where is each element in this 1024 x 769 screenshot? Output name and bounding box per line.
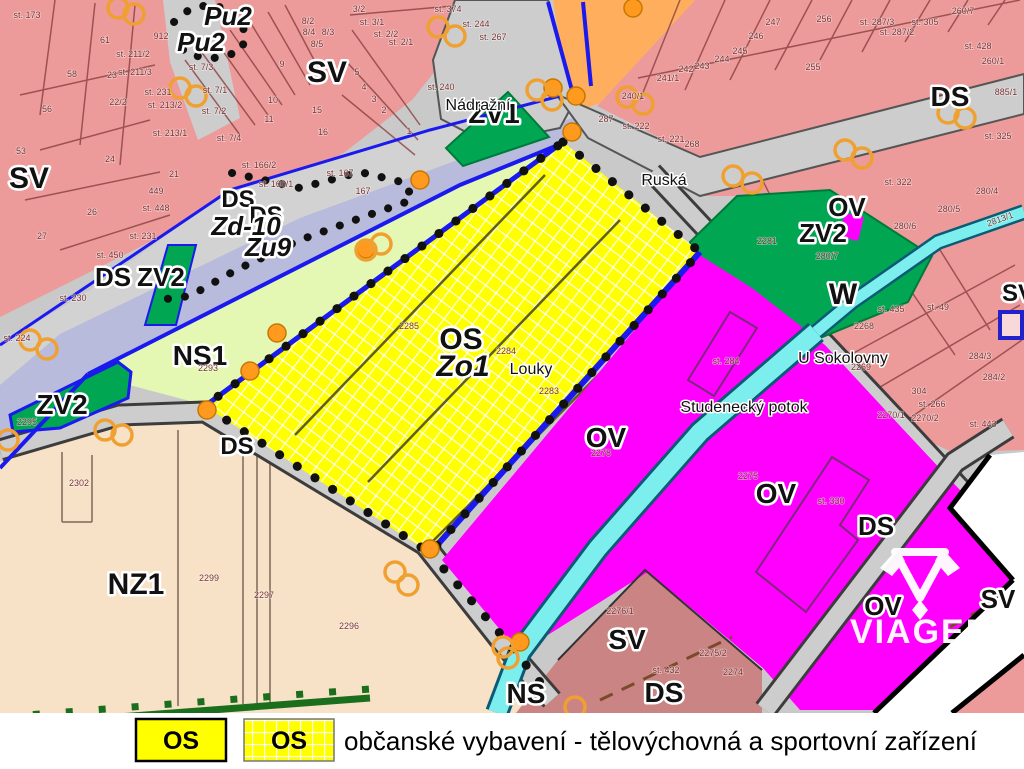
parcel-number: 56: [42, 104, 52, 114]
parcel-number: 23: [107, 70, 117, 80]
legend-swatch-hatched-label: OS: [271, 727, 307, 755]
parcel-number: st. 166/2: [242, 160, 277, 170]
zone-label: DS: [95, 262, 131, 292]
parcel-number: st. 173: [13, 10, 40, 20]
parcel-number: 15: [312, 105, 322, 115]
parcel-number: 3/2: [353, 4, 366, 14]
parcel-number: st. 267: [479, 32, 506, 42]
zoning-map[interactable]: SVPu2Pu2SVZV1DSDSZd-10Zu9DSZV2NS1ZV2DSOV…: [0, 0, 1024, 769]
parcel-number: st. 325: [984, 131, 1011, 141]
legend-description: občanské vybavení - tělovýchovná a sport…: [344, 726, 978, 756]
parcel-number: 2269: [851, 362, 871, 372]
parcel-number: 22/2: [109, 97, 127, 107]
parcel-number: 255: [805, 62, 820, 72]
parcel-number: st. 211/2: [116, 49, 150, 59]
parcel-number: 2274: [723, 667, 743, 677]
parcel-number: st. 231: [144, 87, 171, 97]
parcel-number: 2284: [496, 346, 516, 356]
parcel-number: st. 266: [918, 399, 945, 409]
zone-label: SV: [608, 624, 646, 655]
zone-label: Zo1: [435, 350, 489, 383]
parcel-number: st. 7/4: [217, 133, 242, 143]
parcel-number: 2293: [198, 363, 218, 373]
zone-label: ZV2: [36, 389, 87, 420]
street-label: Studenecký potok: [680, 399, 808, 416]
parcel-number: st. 428: [964, 41, 991, 51]
zone-label: DS: [931, 81, 970, 112]
parcel-number: 2302: [69, 478, 89, 488]
parcel-number: st. 2/1: [389, 37, 414, 47]
parcel-number: 11: [264, 114, 273, 124]
parcel-number: st. 330: [817, 496, 844, 506]
zone-label: Pu2: [177, 27, 225, 57]
parcel-number: st. 443: [969, 419, 996, 429]
parcel-number: 2270/2: [911, 413, 939, 423]
parcel-number: st. 287/3: [860, 17, 895, 27]
zone-label: ZV2: [799, 218, 847, 248]
parcel-number: 9: [279, 59, 284, 69]
zone-label: SV: [307, 56, 347, 89]
parcel-number: 27: [37, 231, 47, 241]
zone-label: SV: [981, 584, 1016, 614]
parcel-number: 256: [816, 14, 831, 24]
parcel-number: 2281: [757, 236, 777, 246]
parcel-number: 2285: [399, 321, 419, 331]
parcel-number: st. 7/1: [203, 85, 228, 95]
parcel-number: st. 7/2: [202, 106, 227, 116]
parcel-number: 268: [684, 139, 699, 149]
parcel-number: 243: [694, 61, 709, 71]
zone-label: SV: [9, 162, 49, 195]
parcel-number: 21: [169, 169, 179, 179]
parcel-number: 4: [361, 82, 366, 92]
parcel-number: 912: [153, 31, 168, 41]
parcel-number: 8/2: [302, 16, 315, 26]
parcel-number: 16: [318, 127, 328, 137]
parcel-number: 284/2: [983, 372, 1006, 382]
zone-label: ZV2: [137, 262, 185, 292]
parcel-number: 449: [148, 186, 163, 196]
parcel-number: 280/6: [894, 221, 917, 231]
parcel-number: 2295: [17, 417, 37, 427]
parcel-number: 1: [406, 126, 411, 136]
parcel-number: st. 230: [59, 293, 86, 303]
parcel-number: st. 374: [434, 4, 461, 14]
parcel-number: 246: [748, 31, 763, 41]
parcel-number: 260/7: [952, 6, 975, 16]
parcel-number: 240/1: [622, 91, 645, 101]
parcel-number: 245: [732, 46, 747, 56]
parcel-number: 167: [355, 186, 370, 196]
parcel-number: 284/3: [969, 351, 992, 361]
zone-label: DS: [645, 677, 684, 708]
parcel-number: st. 213/1: [153, 128, 188, 138]
parcel-number: st. 221: [657, 134, 684, 144]
parcel-number: st. 432: [652, 665, 679, 675]
parcel-number: 53: [16, 146, 26, 156]
parcel-number: 5: [354, 67, 359, 77]
street-label: Ruská: [641, 172, 686, 189]
zone-label: Zu9: [244, 232, 292, 262]
parcel-number: 2297: [254, 590, 274, 600]
parcel-number: 280/7: [816, 251, 839, 261]
parcel-number: st. 224: [3, 333, 30, 343]
street-label: U Sokolovny: [798, 350, 888, 367]
street-label: Louky: [510, 361, 553, 378]
parcel-number: 247: [765, 17, 780, 27]
parcel-number: st. 3/1: [360, 17, 385, 27]
parcel-number: 8/3: [322, 27, 335, 37]
parcel-number: st. 166/1: [259, 179, 294, 189]
parcel-number: st. 284: [712, 356, 739, 366]
parcel-number: st. 450: [96, 250, 123, 260]
parcel-number: 24: [105, 154, 115, 164]
parcel-number: 2268: [854, 321, 874, 331]
parcel-number: 3: [371, 94, 376, 104]
parcel-number: st. 49: [927, 302, 949, 312]
zone-label: W: [829, 278, 858, 311]
parcel-number: st. 287/2: [880, 27, 915, 37]
parcel-number: st. 167: [326, 168, 353, 178]
parcel-number: 304: [911, 386, 926, 396]
zone-label: NS: [507, 678, 546, 709]
zone-label: DS: [858, 511, 894, 541]
parcel-number: st. 222: [622, 121, 649, 131]
parcel-number: 280/5: [938, 204, 961, 214]
parcel-number: st. 305: [911, 17, 938, 27]
parcel-number: 2: [381, 105, 386, 115]
parcel-number: 26: [87, 207, 97, 217]
parcel-number: 61: [100, 35, 110, 45]
parcel-number: 2275: [738, 471, 758, 481]
parcel-number: 885/1: [995, 87, 1018, 97]
parcel-number: st. 213/2: [148, 100, 183, 110]
blue-bordered-parcel: [1000, 312, 1022, 338]
parcel-number: st. 7/3: [189, 62, 214, 72]
parcel-number: st. 448: [142, 203, 169, 213]
parcel-number: 8/5: [311, 39, 324, 49]
parcel-number: st. 211/3: [118, 67, 152, 77]
parcel-number: 2283: [539, 386, 559, 396]
parcel-number: 2275/2: [699, 648, 727, 658]
parcel-number: st. 435: [877, 304, 904, 314]
parcel-number: 58: [67, 69, 77, 79]
parcel-number: 8/4: [303, 27, 316, 37]
parcel-number: 244: [714, 54, 729, 64]
map-viewport[interactable]: SVPu2Pu2SVZV1DSDSZd-10Zu9DSZV2NS1ZV2DSOV…: [0, 0, 1024, 769]
parcel-number: 2299: [199, 573, 219, 583]
legend-swatch-solid-label: OS: [163, 727, 199, 755]
viagem-logo-text: VIAGEM: [850, 613, 996, 651]
zone-label: NZ1: [108, 568, 165, 601]
legend: OS OS občanské vybavení - tělovýchovná a…: [0, 713, 1024, 769]
parcel-number: 2278: [591, 448, 611, 458]
parcel-number: st. 244: [462, 19, 489, 29]
parcel-number: 2270/1: [877, 410, 905, 420]
parcel-number: st. 231: [129, 231, 156, 241]
parcel-number: 242: [678, 64, 693, 74]
zone-label: SV: [1002, 280, 1024, 307]
parcel-number: st. 240: [427, 82, 454, 92]
zone-label: DS: [220, 433, 253, 460]
parcel-number: 260/1: [982, 56, 1005, 66]
parcel-number: 280/4: [976, 186, 999, 196]
parcel-number: 2276/1: [606, 606, 634, 616]
street-label: Nádražní: [446, 97, 511, 114]
parcel-number: 241/1: [657, 73, 680, 83]
zone-label: OV: [756, 478, 797, 509]
parcel-number: 287: [598, 114, 613, 124]
parcel-number: 10: [268, 95, 278, 105]
parcel-number: 2296: [339, 621, 359, 631]
parcel-number: st. 322: [884, 177, 911, 187]
